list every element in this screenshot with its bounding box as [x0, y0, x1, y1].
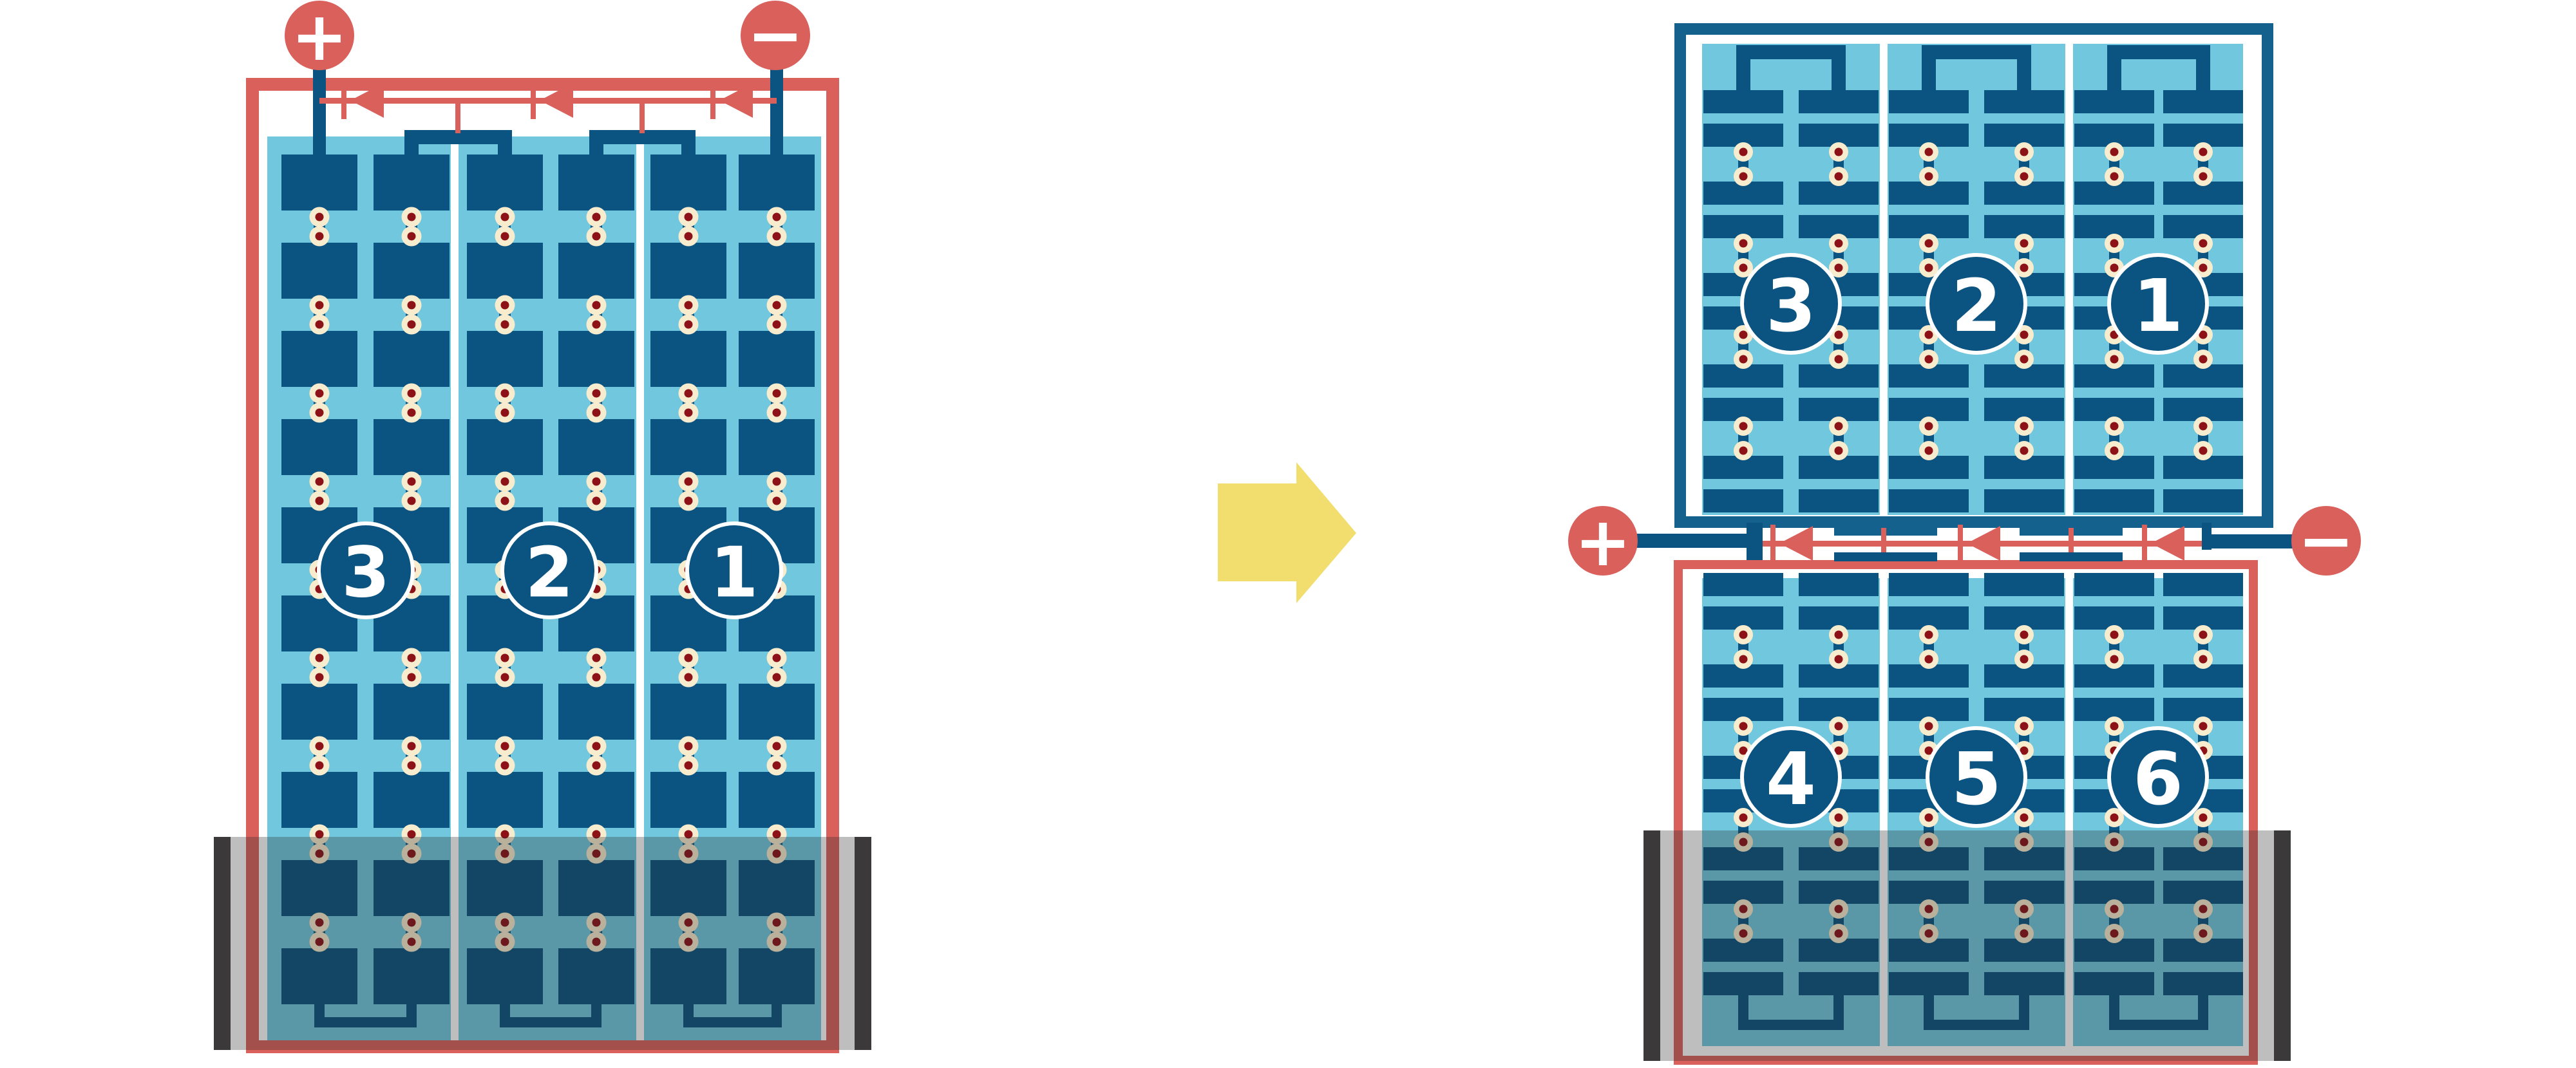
- diagram-canvas: + − 3 2 1: [0, 0, 2576, 1068]
- cell-number-badge: 4: [1742, 728, 1840, 826]
- svg-text:1: 1: [710, 533, 758, 614]
- cell-number-badge: 5: [1927, 728, 2025, 826]
- svg-text:2: 2: [525, 533, 573, 614]
- cell-number-badge: 2: [1927, 255, 2025, 353]
- svg-text:3: 3: [341, 533, 390, 614]
- positive-lead: [1636, 534, 1749, 548]
- negative-terminal: −: [741, 0, 810, 75]
- panel-tab: [1834, 552, 1937, 561]
- positive-lead: [1747, 523, 1763, 561]
- electrolyte-liquid: [1643, 830, 2291, 1061]
- negative-terminal: −: [2291, 501, 2361, 580]
- left-series-stack-unit: + − 3 2 1: [214, 0, 871, 1050]
- svg-text:5: 5: [1951, 738, 2002, 821]
- electrolyte-liquid: [214, 837, 871, 1050]
- cell-number-badge: 6: [2109, 728, 2207, 826]
- positive-terminal: +: [285, 0, 354, 76]
- svg-text:4: 4: [1766, 738, 1816, 821]
- cell-number-badge: 3: [319, 523, 413, 617]
- cell-number-badge: 1: [2109, 255, 2207, 353]
- cell-divider: [1880, 44, 1888, 515]
- minus-symbol: −: [747, 0, 804, 75]
- cell-number-badge: 1: [687, 523, 781, 617]
- plus-symbol: +: [291, 0, 348, 76]
- upper-panel: 3 2 1: [1680, 29, 2268, 536]
- tank-wall: [1643, 830, 1660, 1061]
- negative-lead: [2202, 523, 2211, 550]
- negative-lead: [770, 63, 783, 161]
- cell-number-badge: 3: [1742, 255, 1840, 353]
- plus-symbol: +: [1575, 503, 1631, 581]
- cell-number-badge: 2: [502, 523, 596, 617]
- right-double-stack-unit: 3 2 1: [1568, 29, 2361, 1061]
- transform-arrow-icon: [1218, 462, 1356, 603]
- minus-symbol: −: [2298, 501, 2354, 580]
- electrolyte-tank: [1643, 830, 2291, 1061]
- svg-text:1: 1: [2133, 265, 2183, 348]
- svg-text:6: 6: [2133, 738, 2183, 821]
- negative-lead: [2211, 534, 2295, 548]
- tank-wall: [214, 837, 231, 1050]
- positive-terminal: +: [1568, 503, 1638, 581]
- tank-wall: [855, 837, 871, 1050]
- svg-text:2: 2: [1951, 265, 2002, 348]
- svg-text:3: 3: [1766, 265, 1816, 348]
- tank-wall: [2274, 830, 2291, 1061]
- panel-tab: [2020, 552, 2123, 561]
- positive-lead: [313, 63, 326, 161]
- cell-divider: [2065, 44, 2073, 515]
- diagram-stage: + − 3 2 1: [0, 0, 2576, 1068]
- electrolyte-tank: [214, 837, 871, 1050]
- current-flow-line: [1763, 525, 2202, 562]
